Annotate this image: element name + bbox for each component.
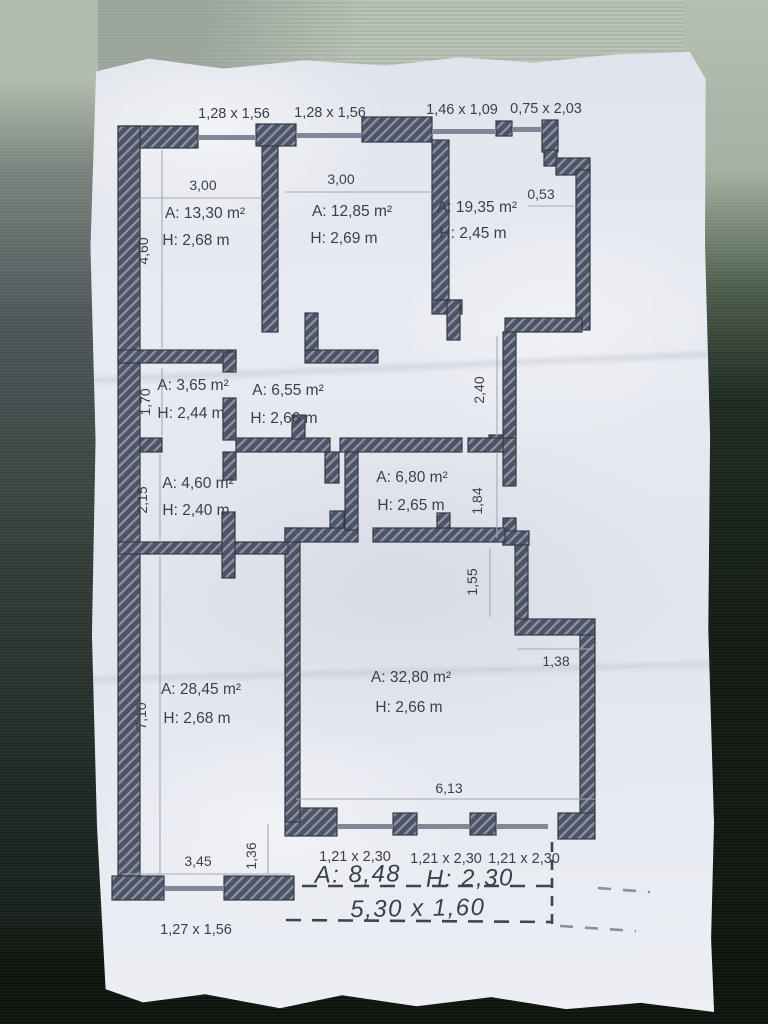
room-area-13-30: A: 13,30 m² <box>165 205 245 222</box>
dim-height-right-mid: 1,84 <box>469 487 485 514</box>
handwritten-balcony-size: 5,30 x 1,60 <box>350 894 486 923</box>
window-label-bottom-left: 1,27 x 1,56 <box>160 922 232 938</box>
room-height-6-55: H: 2,66 m <box>250 410 317 427</box>
room-area-6-80: A: 6,80 m² <box>376 469 448 486</box>
room-height-12-85: H: 2,69 m <box>310 230 377 247</box>
room-height-13-30: H: 2,68 m <box>162 232 229 249</box>
dim-width-room1330: 3,00 <box>189 177 216 193</box>
room-height-32-80: H: 2,66 m <box>375 699 442 716</box>
room-height-19-35: H: 2,45 m <box>439 225 506 242</box>
room-height-3-65: H: 2,44 m <box>157 405 224 422</box>
dim-height-right-upper: 2,40 <box>471 376 487 403</box>
handwritten-balcony-height: H: 2,30 <box>426 864 514 893</box>
dim-offset-top-right: 0,53 <box>527 186 554 202</box>
room-area-32-80: A: 32,80 m² <box>371 669 451 686</box>
window-label-top-4: 0,75 x 2,03 <box>510 101 582 117</box>
dim-width-room1285: 3,00 <box>327 171 354 187</box>
room-area-4-60: A: 4,60 m² <box>162 475 234 492</box>
dim-height-left-bottom: 7,10 <box>133 702 149 729</box>
dim-height-left-top: 4,60 <box>135 237 151 264</box>
dim-width-room2845-bottom: 3,45 <box>184 853 211 869</box>
room-height-4-60: H: 2,40 m <box>162 502 229 519</box>
dim-width-step-right: 1,38 <box>542 653 569 669</box>
room-area-19-35: A: 19,35 m² <box>437 199 517 216</box>
dim-width-room3280-bottom: 6,13 <box>435 780 462 796</box>
dim-height-step-bottom: 1,36 <box>243 842 259 869</box>
room-height-6-80: H: 2,65 m <box>377 497 444 514</box>
room-height-28-45: H: 2,68 m <box>163 710 230 727</box>
room-area-3-65: A: 3,65 m² <box>157 377 229 394</box>
handwritten-balcony-area: A: 8,48 <box>312 860 401 889</box>
window-label-top-3: 1,46 x 1,09 <box>426 102 498 118</box>
room-area-28-45: A: 28,45 m² <box>161 681 241 698</box>
window-label-top-2: 1,28 x 1,56 <box>294 105 366 121</box>
floor-plan: 1,28 x 1,56 1,28 x 1,56 1,46 x 1,09 0,75… <box>0 0 768 1024</box>
dim-height-room365: 1,70 <box>137 388 153 415</box>
dim-height-right-lower: 1,55 <box>464 568 480 595</box>
room-area-12-85: A: 12,85 m² <box>312 203 392 220</box>
dim-height-room460: 2,15 <box>134 486 150 513</box>
window-label-top-1: 1,28 x 1,56 <box>198 106 270 122</box>
room-area-6-55: A: 6,55 m² <box>252 382 324 399</box>
